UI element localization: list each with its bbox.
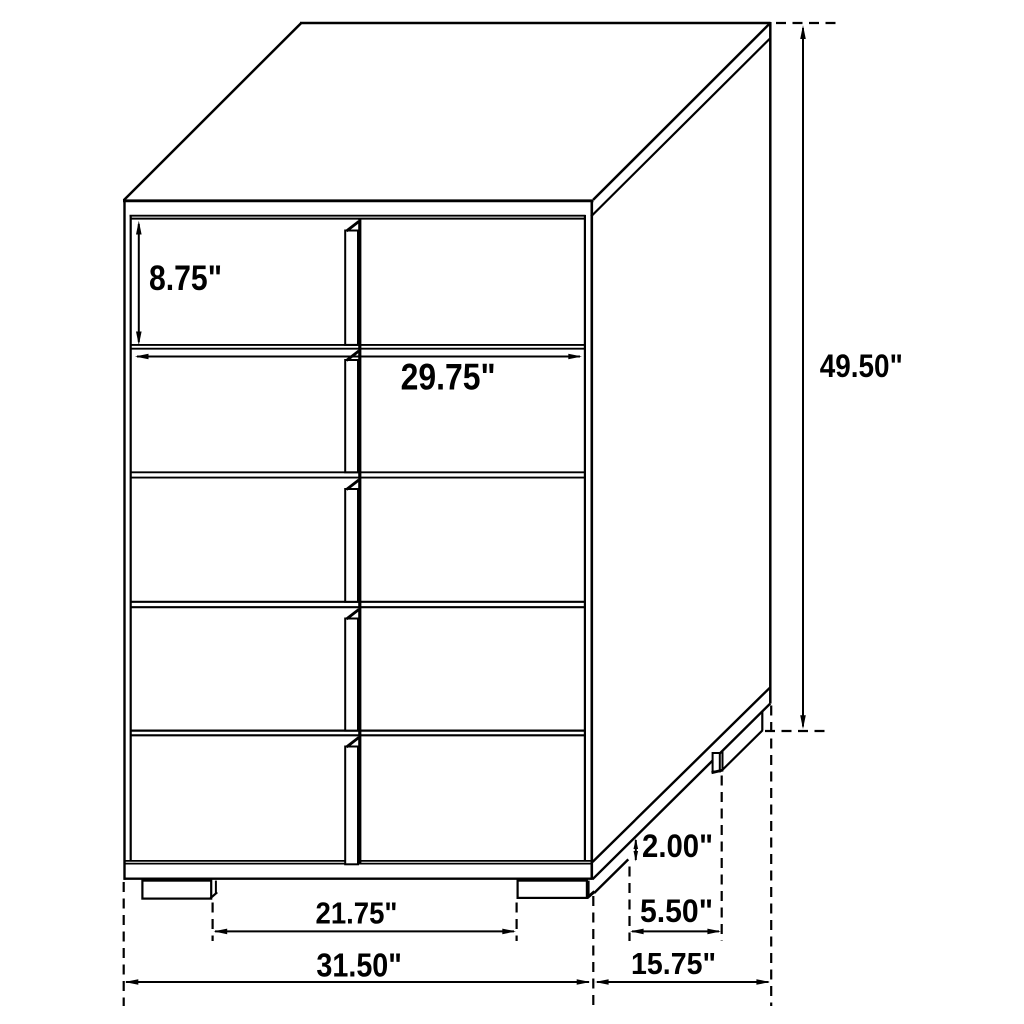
svg-text:21.75": 21.75" <box>316 897 398 931</box>
svg-text:2.00": 2.00" <box>642 828 713 864</box>
svg-text:49.50": 49.50" <box>820 348 903 384</box>
svg-text:15.75": 15.75" <box>631 946 716 981</box>
svg-text:31.50": 31.50" <box>316 947 402 984</box>
svg-text:8.75": 8.75" <box>149 259 222 298</box>
svg-text:29.75": 29.75" <box>401 357 496 398</box>
svg-text:5.50": 5.50" <box>640 893 713 929</box>
